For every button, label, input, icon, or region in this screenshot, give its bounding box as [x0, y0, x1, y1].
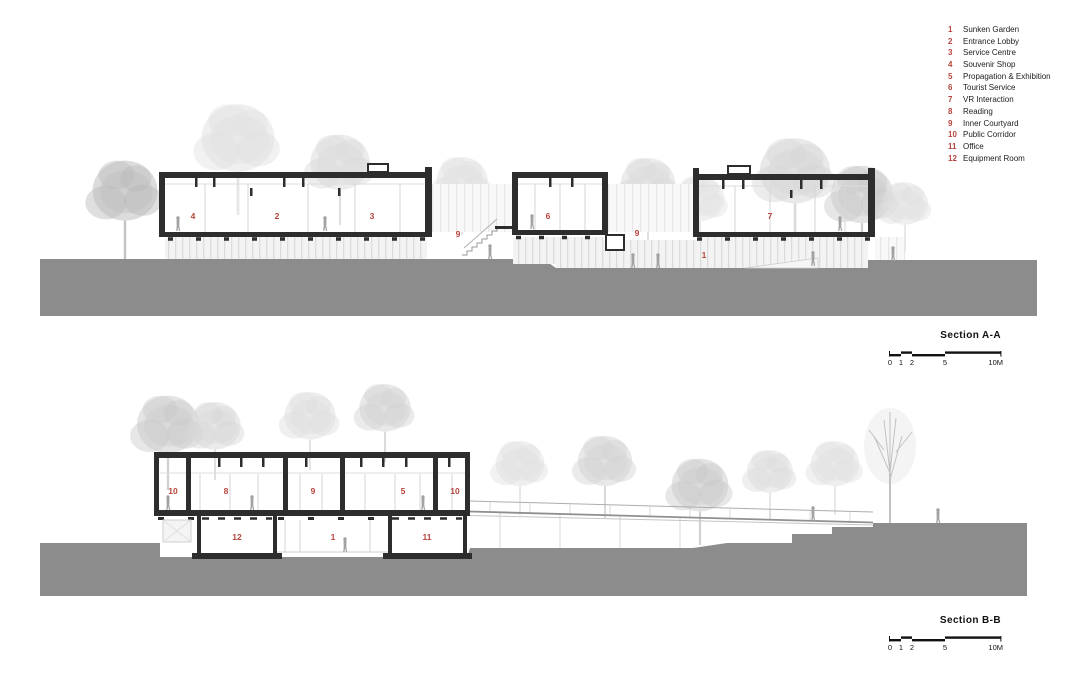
legend-item: 10Public Corridor [948, 130, 1080, 142]
room-label-souvenir-shop: 4 [191, 211, 196, 221]
legend-item-label: Sunken Garden [963, 25, 1019, 34]
legend-item-label: Service Centre [963, 48, 1016, 57]
legend-item-label: Public Corridor [963, 130, 1016, 139]
legend-item-label: Entrance Lobby [963, 37, 1019, 46]
architectural-sections-sheet: 1Sunken Garden 2Entrance Lobby 3Service … [0, 0, 1080, 679]
legend-item-label: VR Interaction [963, 95, 1014, 104]
legend-item-number: 7 [948, 95, 963, 104]
room-label-public-corridor-1: 10 [168, 486, 177, 496]
scalebar-a-tick-1: 1 [899, 358, 903, 367]
legend-item-number: 9 [948, 119, 963, 128]
scalebar-b-tick-2: 2 [910, 643, 914, 652]
legend-item-label: Reading [963, 107, 993, 116]
room-label-tourist-service: 6 [546, 211, 551, 221]
section-b-bare-tree [864, 408, 916, 523]
section-b-title: Section B-B [940, 615, 1001, 626]
legend-item-label: Propagation & Exhibition [963, 72, 1051, 81]
legend-item: 12Equipment Room [948, 154, 1080, 166]
room-label-inner-courtyard-2: 9 [635, 228, 640, 238]
room-label-vr-interaction: 7 [768, 211, 773, 221]
scalebar-a-tick-0: 0 [888, 358, 892, 367]
legend-item-number: 4 [948, 60, 963, 69]
room-label-inner-courtyard-1: 9 [456, 229, 461, 239]
legend-item-number: 2 [948, 37, 963, 46]
scalebar-b-tick-5: 5 [943, 643, 947, 652]
room-label-inner-courtyard-b: 9 [311, 486, 316, 496]
legend-item: 8Reading [948, 107, 1080, 119]
legend-item-number: 11 [948, 142, 963, 151]
room-label-office: 11 [423, 532, 432, 542]
room-label-sunken-garden-b: 1 [331, 532, 336, 542]
legend-item: 11Office [948, 142, 1080, 154]
scalebar-a-tick-2: 2 [910, 358, 914, 367]
scalebar-a-tick-5: 5 [943, 358, 947, 367]
section-a-title: Section A-A [940, 330, 1001, 341]
legend-item-label: Equipment Room [963, 154, 1025, 163]
room-label-service-centre: 3 [370, 211, 375, 221]
room-label-sunken-garden-a: 1 [702, 250, 707, 260]
legend-item-label: Tourist Service [963, 83, 1015, 92]
section-a-block-left [159, 164, 432, 239]
scalebar-b-tick-0: 0 [888, 643, 892, 652]
section-drawings [0, 0, 1080, 679]
scalebar-b-tick-1: 1 [899, 643, 903, 652]
scalebar-a [889, 351, 1001, 357]
legend-item: 2Entrance Lobby [948, 37, 1080, 49]
room-label-propagation-exhibition: 5 [401, 486, 406, 496]
legend-item-label: Souvenir Shop [963, 60, 1015, 69]
legend-item-number: 6 [948, 83, 963, 92]
scalebar-b [889, 636, 1001, 642]
scalebar-b-tick-10m: 10M [988, 643, 1003, 652]
section-a-courtyard-glazing [432, 184, 693, 232]
legend-item-number: 3 [948, 48, 963, 57]
room-label-equipment-room: 12 [232, 532, 241, 542]
legend-item: 1Sunken Garden [948, 25, 1080, 37]
legend-item-number: 8 [948, 107, 963, 116]
legend-item: 4Souvenir Shop [948, 60, 1080, 72]
legend-item-number: 1 [948, 25, 963, 34]
legend-item-label: Office [963, 142, 984, 151]
legend-item-number: 5 [948, 72, 963, 81]
section-a-ground [40, 259, 1037, 316]
room-label-entrance-lobby: 2 [275, 211, 280, 221]
legend-item: 3Service Centre [948, 48, 1080, 60]
legend-item: 9Inner Courtyard [948, 119, 1080, 131]
room-label-public-corridor-2: 10 [450, 486, 459, 496]
scalebar-a-tick-10m: 10M [988, 358, 1003, 367]
legend-item-label: Inner Courtyard [963, 119, 1019, 128]
room-legend: 1Sunken Garden 2Entrance Lobby 3Service … [948, 25, 1080, 165]
legend-item-number: 10 [948, 130, 963, 139]
legend-item: 6Tourist Service [948, 83, 1080, 95]
room-label-reading: 8 [224, 486, 229, 496]
legend-item: 7VR Interaction [948, 95, 1080, 107]
legend-item-number: 12 [948, 154, 963, 163]
legend-item: 5Propagation & Exhibition [948, 72, 1080, 84]
